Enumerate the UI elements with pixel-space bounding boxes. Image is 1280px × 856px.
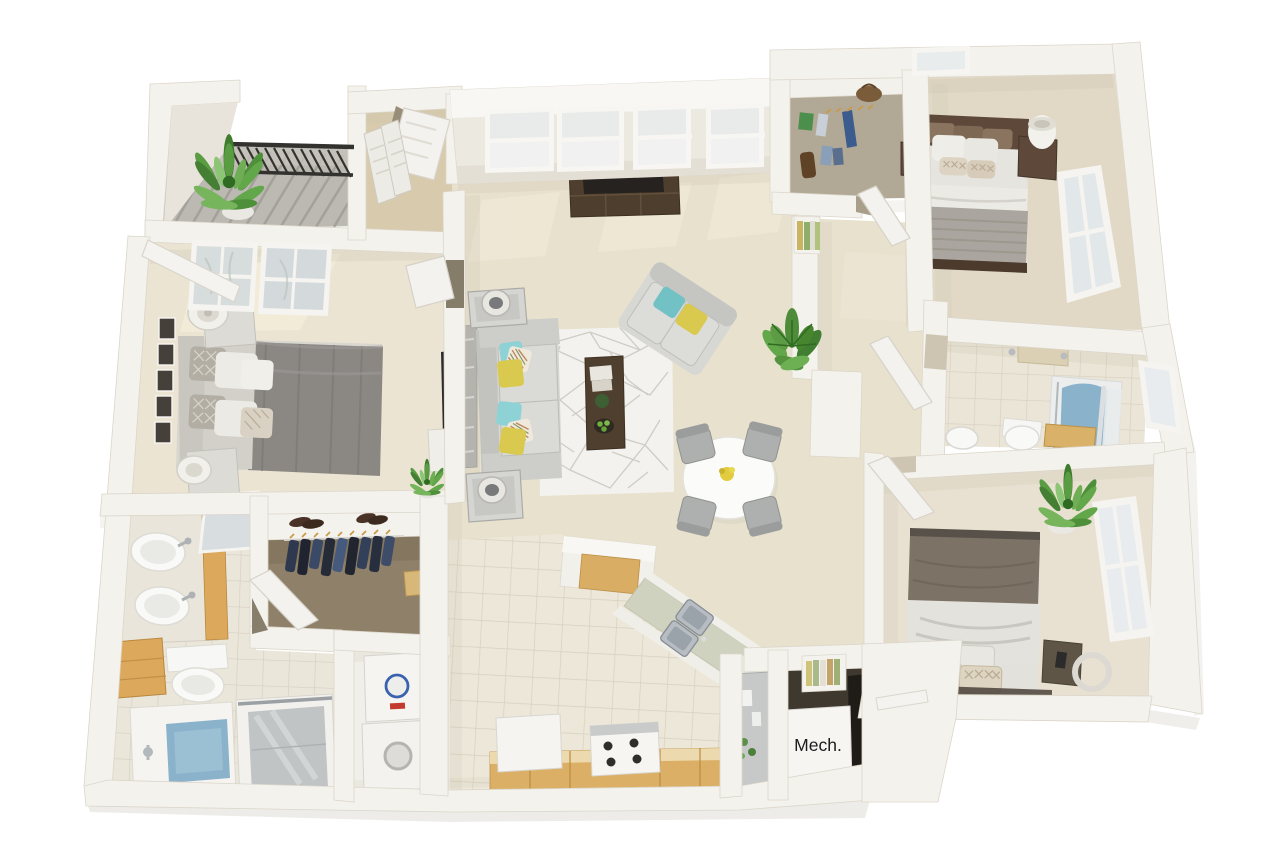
svg-text:Mech.: Mech. [794, 735, 842, 755]
